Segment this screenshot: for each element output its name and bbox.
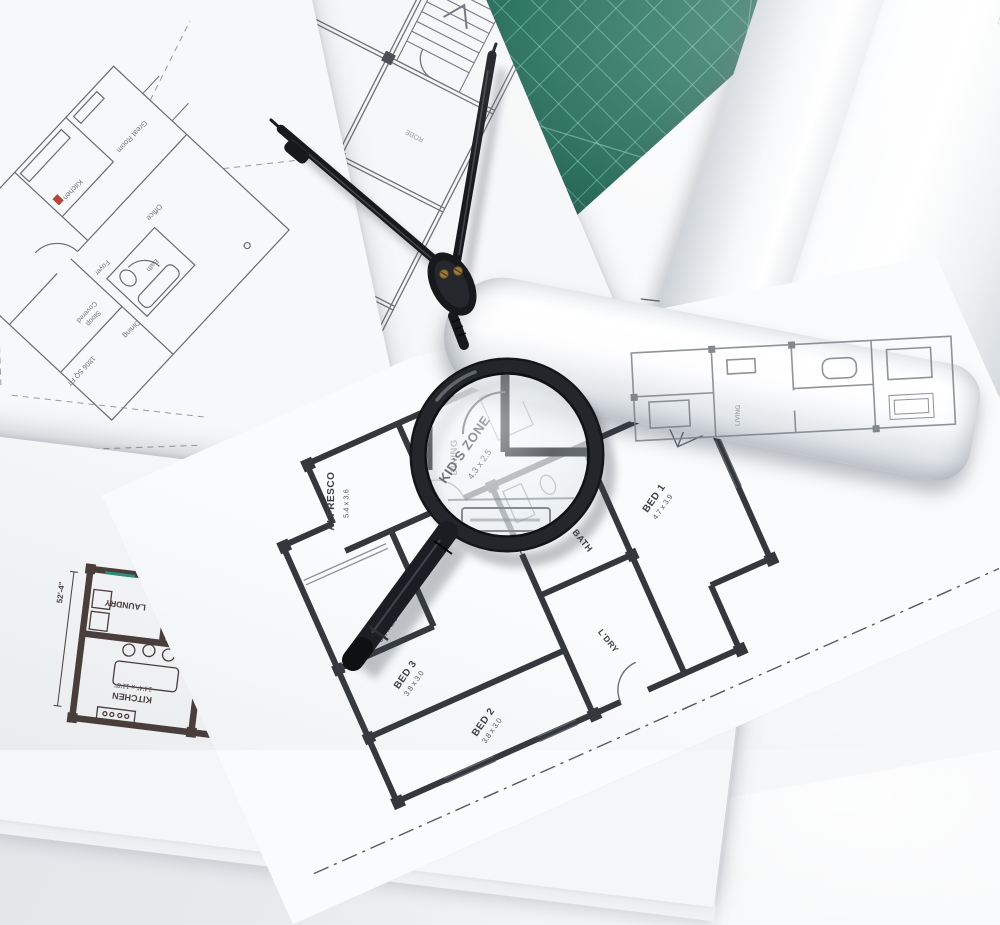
label-kitchen-left: Kitchen	[61, 178, 85, 202]
label-sqft: 1806 SQ FT	[65, 354, 97, 387]
label-kitchen-bottom: KITCHEN	[112, 690, 153, 705]
label-dining-left: Dining	[121, 318, 142, 340]
label-bath-left: Bath	[144, 257, 159, 272]
label-office-left: Office	[144, 202, 164, 222]
room-label-living-roll: LIVING	[734, 405, 742, 427]
room-label-ldry: L'DRY	[596, 627, 621, 655]
label-dim-52-4: 52'-4"	[55, 581, 67, 604]
label-laundry: LAUNDRY	[104, 598, 146, 613]
label-greatroom-left: Great Room	[115, 119, 149, 155]
room-dims-alfresco: 5.4 x 3.6	[341, 489, 350, 518]
room-label-bath-main: BATH	[570, 527, 594, 554]
room-label-alfresco: ALFRESCO	[326, 472, 337, 531]
photo-blueprints-scene: { "colors": { "mat_green": "#1a6a53", "m…	[0, 0, 1000, 750]
room-label-robe-top: ROBE	[404, 128, 425, 143]
room-label-ref: REF	[500, 406, 512, 425]
room-label-dining-main: DINING	[449, 439, 460, 475]
label-foyer-left: Foyer	[93, 258, 111, 276]
